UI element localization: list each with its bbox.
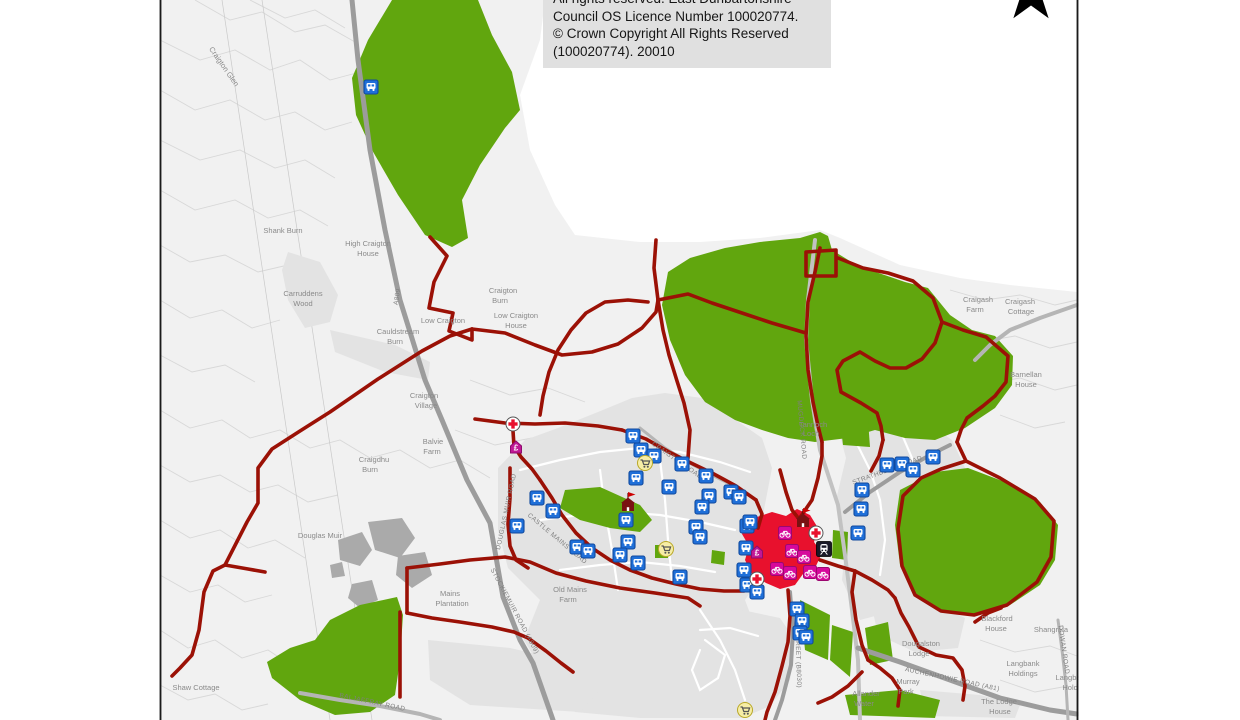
bus-stop-icon[interactable] xyxy=(626,429,640,443)
bus-window xyxy=(803,618,806,620)
bus-window xyxy=(638,447,641,449)
bus-window xyxy=(706,493,709,495)
school-door xyxy=(627,507,629,511)
bus-window xyxy=(368,84,371,86)
bus-body xyxy=(616,551,625,557)
bus-wheel xyxy=(513,528,515,530)
bus-window xyxy=(794,606,797,608)
bus-window xyxy=(703,473,706,475)
cross-horizontal xyxy=(508,422,517,425)
map-canvas[interactable]: Shank BurnHigh CraigtonHouseCarruddensWo… xyxy=(0,0,1240,720)
cart-circle xyxy=(659,542,674,557)
place-label: Farm xyxy=(423,447,441,456)
bus-body xyxy=(367,83,376,89)
map-export-page: Shank BurnHigh CraigtonHouseCarruddensWo… xyxy=(0,0,1240,720)
bus-wheel xyxy=(929,459,931,461)
bus-window xyxy=(858,506,861,508)
bus-stop-icon[interactable] xyxy=(613,548,627,562)
bus-wheel xyxy=(758,594,760,596)
train-light xyxy=(825,550,827,552)
bus-wheel xyxy=(796,635,798,637)
bus-body xyxy=(857,505,866,511)
bus-wheel xyxy=(740,572,742,574)
bus-window xyxy=(699,504,702,506)
place-label: Carruddens xyxy=(283,289,322,298)
bus-wheel xyxy=(857,511,859,513)
train-station-icon[interactable] xyxy=(817,542,832,557)
bus-window xyxy=(633,475,636,477)
bus-wheel xyxy=(683,466,685,468)
bus-stop-icon[interactable] xyxy=(699,469,713,483)
bus-wheel xyxy=(367,89,369,91)
train-window xyxy=(822,545,827,547)
bus-window xyxy=(617,552,620,554)
supermarket-icon[interactable] xyxy=(738,703,753,718)
place-label: Shaw Cottage xyxy=(172,683,219,692)
bus-wheel xyxy=(632,480,634,482)
bus-body xyxy=(629,432,638,438)
bus-wheel xyxy=(742,550,744,552)
bus-stop-icon[interactable] xyxy=(621,535,635,549)
place-label: Craigash xyxy=(1005,297,1035,306)
bus-body xyxy=(692,523,701,529)
bus-stop-icon[interactable] xyxy=(530,491,544,505)
bus-window xyxy=(578,544,581,546)
cycle-parking-icon[interactable] xyxy=(817,568,830,581)
bus-body xyxy=(632,474,641,480)
place-label: Low Craigton xyxy=(494,311,538,320)
bus-body xyxy=(637,446,646,452)
bus-window xyxy=(625,539,628,541)
bus-wheel xyxy=(710,498,712,500)
bus-window xyxy=(679,461,682,463)
bus-stop-icon[interactable] xyxy=(880,458,894,472)
bus-window xyxy=(914,467,917,469)
train-light xyxy=(821,550,823,552)
bus-body xyxy=(898,460,907,466)
place-label: Barnellan xyxy=(1010,370,1042,379)
bus-wheel xyxy=(793,611,795,613)
bus-stop-icon[interactable] xyxy=(737,563,751,577)
place-label: Blackford xyxy=(981,614,1012,623)
bus-window xyxy=(747,545,750,547)
bus-wheel xyxy=(639,565,641,567)
bus-window xyxy=(903,461,906,463)
bus-window xyxy=(621,552,624,554)
bus-window xyxy=(888,462,891,464)
bus-wheel xyxy=(554,513,556,515)
bus-body xyxy=(698,503,707,509)
bus-body xyxy=(735,493,744,499)
bus-window xyxy=(884,462,887,464)
bus-stop-icon[interactable] xyxy=(743,515,757,529)
bus-window xyxy=(629,539,632,541)
bus-wheel xyxy=(573,549,575,551)
bus-window xyxy=(514,523,517,525)
bus-body xyxy=(676,573,685,579)
bus-body xyxy=(650,452,659,458)
bus-body xyxy=(740,566,749,572)
bus-wheel xyxy=(854,535,856,537)
bank-pound-glyph: £ xyxy=(755,548,760,557)
bus-wheel xyxy=(642,452,644,454)
bus-body xyxy=(929,453,938,459)
bus-wheel xyxy=(883,467,885,469)
bus-body xyxy=(549,507,558,513)
place-label: Mains xyxy=(440,589,460,598)
bus-stop-icon[interactable] xyxy=(906,463,920,477)
bus-window xyxy=(518,523,521,525)
cycle-parking-icon[interactable] xyxy=(771,563,784,576)
bus-wheel xyxy=(701,539,703,541)
bus-stop-icon[interactable] xyxy=(510,519,524,533)
cross-horizontal xyxy=(811,531,820,534)
train-body xyxy=(820,544,827,552)
school-door xyxy=(802,523,804,527)
cross-horizontal xyxy=(752,577,761,580)
bus-wheel xyxy=(898,466,900,468)
supermarket-icon[interactable] xyxy=(638,456,653,471)
bus-stop-icon[interactable] xyxy=(581,544,595,558)
bus-wheel xyxy=(702,478,704,480)
bus-window xyxy=(554,508,557,510)
bus-stop-icon[interactable] xyxy=(732,490,746,504)
bus-wheel xyxy=(727,494,729,496)
place-label: Craigash xyxy=(963,295,993,304)
bus-stop-icon[interactable] xyxy=(750,585,764,599)
bus-stop-icon[interactable] xyxy=(854,502,868,516)
bus-stop-icon[interactable] xyxy=(693,530,707,544)
bus-wheel xyxy=(798,623,800,625)
bus-window xyxy=(589,548,592,550)
bus-body xyxy=(702,472,711,478)
bus-window xyxy=(666,484,669,486)
cart-circle xyxy=(638,456,653,471)
bus-wheel xyxy=(624,544,626,546)
bus-body xyxy=(802,633,811,639)
bus-wheel xyxy=(637,480,639,482)
bus-window xyxy=(807,634,810,636)
bus-stop-icon[interactable] xyxy=(634,443,648,457)
place-label: Burn xyxy=(362,465,378,474)
bus-stop-icon[interactable] xyxy=(546,504,560,518)
bus-window xyxy=(630,433,633,435)
place-label: House xyxy=(1015,380,1037,389)
bus-wheel xyxy=(740,499,742,501)
green-space xyxy=(840,420,870,447)
bus-wheel xyxy=(862,511,864,513)
bus-body xyxy=(854,529,863,535)
bus-window xyxy=(623,517,626,519)
bus-wheel xyxy=(629,438,631,440)
bus-wheel xyxy=(634,438,636,440)
bus-stop-icon[interactable] xyxy=(799,630,813,644)
bus-window xyxy=(758,589,761,591)
bus-wheel xyxy=(655,458,657,460)
place-label: Farm xyxy=(966,305,984,314)
hospital-cross-icon[interactable] xyxy=(750,572,764,586)
bus-window xyxy=(634,433,637,435)
place-label: Shank Burn xyxy=(263,226,302,235)
place-label: Old Mains xyxy=(553,585,587,594)
cycle-parking-icon[interactable] xyxy=(784,567,797,580)
bus-wheel xyxy=(743,587,745,589)
bus-window xyxy=(550,508,553,510)
bus-body xyxy=(665,483,674,489)
place-label: Craigton xyxy=(410,391,438,400)
place-label: House xyxy=(357,249,379,258)
bus-wheel xyxy=(858,492,860,494)
bus-window xyxy=(538,495,541,497)
place-label: Park xyxy=(898,687,914,696)
place-label: Cauldstream xyxy=(377,327,420,336)
cycle-parking-icon[interactable] xyxy=(804,566,817,579)
bus-window xyxy=(670,484,673,486)
bus-window xyxy=(697,524,700,526)
place-label: Holdings xyxy=(1008,669,1037,678)
bus-window xyxy=(627,517,630,519)
bus-wheel xyxy=(676,579,678,581)
bus-wheel xyxy=(934,459,936,461)
cart-wheel xyxy=(668,552,670,554)
bus-wheel xyxy=(681,579,683,581)
bus-wheel xyxy=(859,535,861,537)
bus-window xyxy=(930,454,933,456)
bus-window xyxy=(751,519,754,521)
cart-wheel xyxy=(643,466,645,468)
bus-wheel xyxy=(803,623,805,625)
bus-stop-icon[interactable] xyxy=(926,450,940,464)
bus-window xyxy=(703,504,706,506)
bus-window xyxy=(740,494,743,496)
bus-window xyxy=(754,589,757,591)
bus-body xyxy=(858,486,867,492)
bus-wheel xyxy=(621,557,623,559)
place-label: House xyxy=(505,321,527,330)
place-label: Craigdhu xyxy=(359,455,389,464)
bus-window xyxy=(710,493,713,495)
bus-wheel xyxy=(735,499,737,501)
bus-body xyxy=(624,538,633,544)
bus-wheel xyxy=(637,452,639,454)
bus-window xyxy=(748,582,751,584)
bus-window xyxy=(639,560,642,562)
bus-stop-icon[interactable] xyxy=(673,570,687,584)
right-margin xyxy=(1079,0,1240,720)
cycle-parking-icon[interactable] xyxy=(798,551,811,564)
place-label: The Lodge xyxy=(981,697,1017,706)
place-label: Langbank xyxy=(1007,659,1040,668)
bus-wheel xyxy=(807,639,809,641)
bus-window xyxy=(637,475,640,477)
bus-body xyxy=(678,460,687,466)
green-space xyxy=(711,550,725,565)
bus-wheel xyxy=(707,478,709,480)
bus-body xyxy=(909,466,918,472)
bus-window xyxy=(743,545,746,547)
bus-wheel xyxy=(798,611,800,613)
place-label: Plantation xyxy=(435,599,468,608)
bus-window xyxy=(701,534,704,536)
bus-window xyxy=(910,467,913,469)
place-label: Lodge xyxy=(909,649,930,658)
bus-window xyxy=(934,454,937,456)
bus-stop-icon[interactable] xyxy=(629,471,643,485)
bus-window xyxy=(855,530,858,532)
place-label: Wood xyxy=(293,299,312,308)
copyright-line: Council OS Licence Number 100020774. xyxy=(553,8,821,26)
bus-window xyxy=(728,489,731,491)
cart-circle xyxy=(738,703,753,718)
bus-stop-icon[interactable] xyxy=(631,556,645,570)
bus-wheel xyxy=(914,472,916,474)
north-star-icon xyxy=(1002,0,1059,18)
bus-window xyxy=(651,453,654,455)
bus-window xyxy=(798,606,801,608)
bus-body xyxy=(746,518,755,524)
cart-wheel xyxy=(647,466,649,468)
bus-body xyxy=(883,461,892,467)
bus-wheel xyxy=(622,522,624,524)
copyright-line: All rights reserved. East Dunbartonshire xyxy=(553,0,821,8)
bus-body xyxy=(584,547,593,553)
bus-wheel xyxy=(372,89,374,91)
bus-wheel xyxy=(698,509,700,511)
hospital-cross-icon[interactable] xyxy=(506,417,520,431)
bus-wheel xyxy=(745,572,747,574)
bus-window xyxy=(635,560,638,562)
bus-window xyxy=(745,567,748,569)
place-label: Murray xyxy=(896,677,920,686)
bus-wheel xyxy=(863,492,865,494)
bank-pound-glyph: £ xyxy=(514,443,519,452)
bus-body xyxy=(753,588,762,594)
bus-window xyxy=(859,487,862,489)
bus-wheel xyxy=(747,550,749,552)
bus-body xyxy=(573,543,582,549)
bus-body xyxy=(696,533,705,539)
place-label: High Craigton xyxy=(345,239,391,248)
bus-wheel xyxy=(538,500,540,502)
place-label: Douglas Muir xyxy=(298,531,343,540)
bus-window xyxy=(681,574,684,576)
copyright-box: All rights reserved. East Dunbartonshire… xyxy=(543,0,831,68)
bus-body xyxy=(705,492,714,498)
bus-wheel xyxy=(678,466,680,468)
bus-stop-icon[interactable] xyxy=(619,513,633,527)
bus-wheel xyxy=(616,557,618,559)
bus-stop-icon[interactable] xyxy=(364,80,378,94)
bus-wheel xyxy=(584,553,586,555)
bus-body xyxy=(798,617,807,623)
bus-body xyxy=(742,544,751,550)
bus-wheel xyxy=(696,539,698,541)
bus-wheel xyxy=(518,528,520,530)
bus-wheel xyxy=(634,565,636,567)
bus-window xyxy=(683,461,686,463)
place-label: Dougalston xyxy=(902,639,940,648)
bus-window xyxy=(863,487,866,489)
bus-window xyxy=(899,461,902,463)
bus-body xyxy=(533,494,542,500)
bus-window xyxy=(534,495,537,497)
bus-stop-icon[interactable] xyxy=(851,526,865,540)
cart-wheel xyxy=(743,713,745,715)
cart-wheel xyxy=(664,552,666,554)
bus-wheel xyxy=(802,639,804,641)
bus-window xyxy=(803,634,806,636)
cycle-parking-icon[interactable] xyxy=(786,545,799,558)
bus-window xyxy=(693,524,696,526)
bus-window xyxy=(744,582,747,584)
place-label: Low Craigton xyxy=(421,316,465,325)
bus-wheel xyxy=(903,466,905,468)
bus-wheel xyxy=(703,509,705,511)
bus-wheel xyxy=(670,489,672,491)
bus-wheel xyxy=(909,472,911,474)
bus-wheel xyxy=(627,522,629,524)
supermarket-icon[interactable] xyxy=(659,542,674,557)
hospital-cross-icon[interactable] xyxy=(809,526,823,540)
bus-stop-icon[interactable] xyxy=(739,541,753,555)
place-label: Balvie xyxy=(423,437,443,446)
bus-window xyxy=(862,506,865,508)
bus-stop-icon[interactable] xyxy=(662,480,676,494)
place-label: Burn xyxy=(492,296,508,305)
bus-body xyxy=(634,559,643,565)
copyright-line: © Crown Copyright All Rights Reserved xyxy=(553,25,821,43)
bus-wheel xyxy=(533,500,535,502)
cycle-parking-icon[interactable] xyxy=(779,527,792,540)
bus-window xyxy=(372,84,375,86)
bus-window xyxy=(642,447,645,449)
place-label: Cottage xyxy=(1008,307,1034,316)
place-label: Village xyxy=(415,401,437,410)
bus-window xyxy=(747,519,750,521)
place-label: Allander xyxy=(852,689,880,698)
bus-window xyxy=(585,548,588,550)
bus-wheel xyxy=(753,594,755,596)
bus-stop-icon[interactable] xyxy=(695,500,709,514)
bus-stop-icon[interactable] xyxy=(855,483,869,497)
copyright-line: (100020774). 20010 xyxy=(553,43,821,61)
bus-wheel xyxy=(665,489,667,491)
place-label: Farm xyxy=(559,595,577,604)
bus-wheel xyxy=(549,513,551,515)
cart-wheel xyxy=(747,713,749,715)
bus-window xyxy=(736,494,739,496)
place-label: Burn xyxy=(387,337,403,346)
place-label: Water xyxy=(854,699,874,708)
bus-window xyxy=(677,574,680,576)
place-label: Craigton xyxy=(489,286,517,295)
bus-wheel xyxy=(888,467,890,469)
bus-stop-icon[interactable] xyxy=(675,457,689,471)
bus-wheel xyxy=(746,524,748,526)
bus-body xyxy=(622,516,631,522)
bus-window xyxy=(574,544,577,546)
bus-window xyxy=(697,534,700,536)
bus-wheel xyxy=(629,544,631,546)
bus-wheel xyxy=(751,524,753,526)
bus-window xyxy=(741,567,744,569)
left-margin xyxy=(0,0,160,720)
bus-body xyxy=(793,605,802,611)
bus-window xyxy=(859,530,862,532)
bus-window xyxy=(655,453,658,455)
bus-wheel xyxy=(578,549,580,551)
bus-window xyxy=(799,618,802,620)
